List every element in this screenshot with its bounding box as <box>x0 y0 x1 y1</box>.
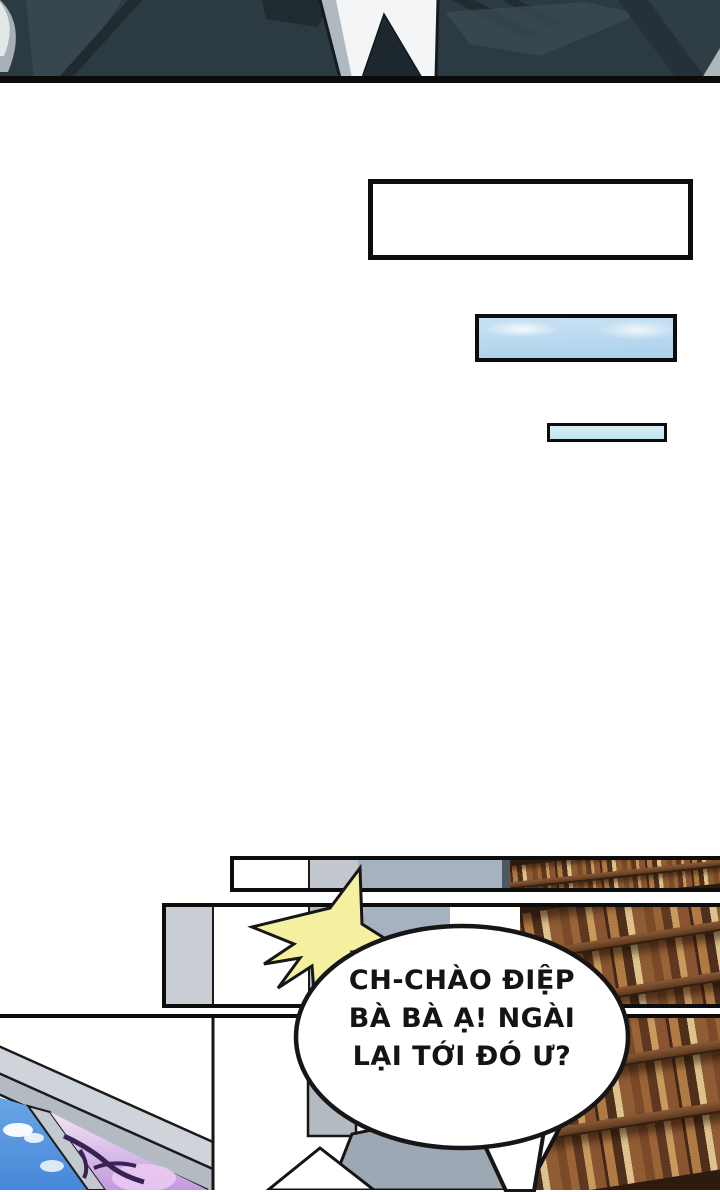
panel-border-bottom <box>0 76 720 83</box>
bookshelf-rows <box>510 860 720 888</box>
wall-strip <box>166 907 214 1004</box>
suit-illustration <box>0 0 720 83</box>
speech-text-line: LẠI TỚI ĐÓ Ư? <box>316 1038 608 1076</box>
bookshelf-strip <box>510 860 720 888</box>
lapel-edge-right <box>436 0 438 78</box>
speech-text-line: BÀ BÀ Ạ! NGÀI <box>316 1000 608 1038</box>
flashback-sky-panel-3 <box>547 423 667 442</box>
speech-text-line: CH-CHÀO ĐIỆP <box>316 962 608 1000</box>
suit-panel <box>0 0 720 83</box>
flashback-sky-panel-2 <box>475 314 677 362</box>
speech-text: CH-CHÀO ĐIỆP BÀ BÀ Ạ! NGÀI LẠI TỚI ĐÓ Ư? <box>316 962 608 1076</box>
shelf-side-edge <box>502 860 510 888</box>
flashback-sky-panel-1 <box>368 179 693 260</box>
